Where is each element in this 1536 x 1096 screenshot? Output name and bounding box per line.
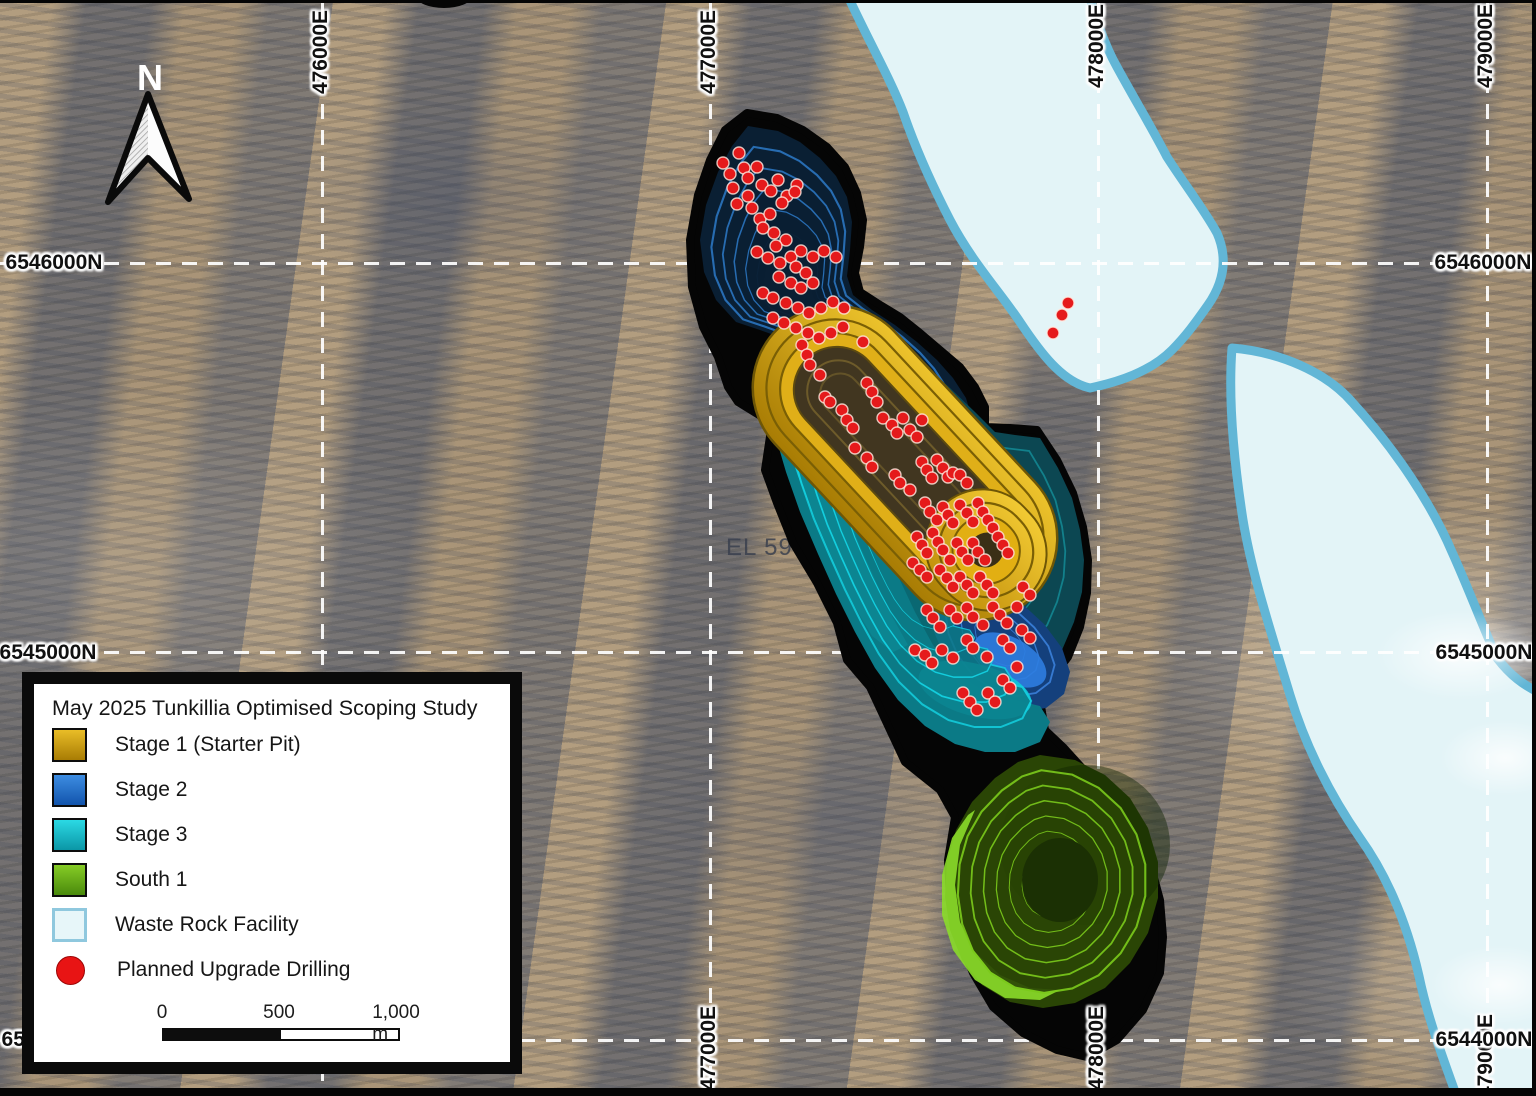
- drill-point: [1011, 601, 1023, 613]
- drill-point: [814, 369, 826, 381]
- drill-point: [762, 252, 774, 264]
- scale-bar-rule: [162, 1028, 400, 1041]
- grid-label-easting: 478000E: [1085, 1006, 1109, 1090]
- drill-point: [857, 336, 869, 348]
- drill-point: [962, 554, 974, 566]
- drill-point: [795, 245, 807, 257]
- legend-item-stage1: Stage 1 (Starter Pit): [52, 726, 301, 764]
- map-border-bottom: [0, 1088, 1536, 1096]
- drill-point: [772, 174, 784, 186]
- legend-title: May 2025 Tunkillia Optimised Scoping Stu…: [52, 696, 477, 721]
- stage3-swatch: [52, 818, 87, 852]
- drill-point: [742, 172, 754, 184]
- waste-rock-swatch: [52, 908, 87, 942]
- drill-point: [764, 208, 776, 220]
- grid-label-easting: 476000E: [309, 10, 333, 94]
- drill-point: [866, 461, 878, 473]
- grid-label-easting: 478000E: [1085, 4, 1109, 88]
- drill-point: [921, 547, 933, 559]
- drill-point: [967, 611, 979, 623]
- drill-point: [971, 704, 983, 716]
- drill-point: [981, 651, 993, 663]
- map-border-top: [0, 0, 1536, 3]
- drill-point: [827, 296, 839, 308]
- grid-label-easting: 479000E: [1474, 4, 1498, 88]
- stage1-swatch: [52, 728, 87, 762]
- grid-label-northing: 6546000N: [1435, 251, 1532, 275]
- drill-point: [770, 240, 782, 252]
- drill-point: [818, 245, 830, 257]
- drill-point: [824, 396, 836, 408]
- map-border-right: [1532, 0, 1536, 1096]
- legend-panel: May 2025 Tunkillia Optimised Scoping Stu…: [22, 672, 522, 1074]
- scale-tick-0: 0: [157, 1002, 168, 1024]
- drill-point: [871, 396, 883, 408]
- drill-point: [767, 312, 779, 324]
- drill-point: [977, 619, 989, 631]
- drill-point: [776, 197, 788, 209]
- scale-tick-500: 500: [263, 1002, 295, 1024]
- legend-item-label: Planned Upgrade Drilling: [117, 958, 350, 982]
- drill-point: [830, 251, 842, 263]
- drill-point: [1011, 661, 1023, 673]
- legend-item-label: Waste Rock Facility: [115, 913, 299, 937]
- stage2-swatch: [52, 773, 87, 807]
- legend-item-stage3: Stage 3: [52, 816, 187, 854]
- drill-point: [897, 412, 909, 424]
- drill-point: [742, 190, 754, 202]
- drill-point: [934, 621, 946, 633]
- drill-point: [1004, 642, 1016, 654]
- drill-point: [768, 227, 780, 239]
- scale-bar: 0 500 1,000 m: [140, 1002, 420, 1041]
- drill-point: [825, 327, 837, 339]
- drill-point: [813, 332, 825, 344]
- drill-point: [847, 422, 859, 434]
- drill-point: [838, 302, 850, 314]
- grid-label-easting: 477000E: [697, 1006, 721, 1090]
- drill-point: [746, 202, 758, 214]
- drill-point: [773, 271, 785, 283]
- legend-item-stage2: Stage 2: [52, 771, 187, 809]
- drill-point: [967, 587, 979, 599]
- drilling-dot-icon: [56, 956, 85, 985]
- drill-point: [790, 322, 802, 334]
- drill-point: [789, 186, 801, 198]
- grid-label-northing: 6546000N: [6, 251, 103, 275]
- drill-point: [795, 282, 807, 294]
- legend-item-drilling: Planned Upgrade Drilling: [52, 951, 350, 989]
- drill-point: [837, 321, 849, 333]
- drill-point: [792, 302, 804, 314]
- south1-swatch: [52, 863, 87, 897]
- drill-point: [849, 442, 861, 454]
- drill-point: [926, 472, 938, 484]
- drill-point: [1002, 547, 1014, 559]
- drill-point: [936, 644, 948, 656]
- drill-point: [921, 571, 933, 583]
- drill-point: [807, 277, 819, 289]
- legend-item-waste-rock: Waste Rock Facility: [52, 906, 299, 944]
- drill-point: [724, 168, 736, 180]
- drill-point: [967, 642, 979, 654]
- drill-point: [807, 251, 819, 263]
- scale-bar-ticks: 0 500 1,000 m: [140, 1002, 420, 1028]
- legend-item-label: Stage 1 (Starter Pit): [115, 733, 301, 757]
- drill-point: [931, 514, 943, 526]
- legend-item-label: Stage 2: [115, 778, 187, 802]
- drill-point: [891, 427, 903, 439]
- drill-point: [916, 414, 928, 426]
- drill-point: [803, 307, 815, 319]
- drill-point: [1001, 617, 1013, 629]
- drill-point: [727, 182, 739, 194]
- grid-label-easting: 477000E: [697, 10, 721, 94]
- drill-point: [951, 612, 963, 624]
- north-arrow: N: [95, 48, 205, 218]
- drill-point: [757, 222, 769, 234]
- drill-point: [1024, 589, 1036, 601]
- drill-point: [961, 477, 973, 489]
- drill-point: [733, 147, 745, 159]
- grid-label-easting: 479000E: [1474, 1014, 1498, 1096]
- grid-label-northing: 6544000N: [1436, 1028, 1533, 1052]
- drill-point: [1047, 327, 1059, 339]
- drill-point: [765, 185, 777, 197]
- scale-tick-1000: 1,000 m: [372, 1002, 420, 1046]
- drill-point: [904, 484, 916, 496]
- drill-point: [944, 554, 956, 566]
- drill-point: [731, 198, 743, 210]
- drill-point: [802, 327, 814, 339]
- drill-point: [911, 431, 923, 443]
- drill-point: [751, 246, 763, 258]
- drill-point: [780, 297, 792, 309]
- map-canvas: EL 5901: [0, 0, 1536, 1096]
- drill-point: [1024, 632, 1036, 644]
- drill-point: [1004, 682, 1016, 694]
- drill-point: [815, 302, 827, 314]
- drill-point: [967, 516, 979, 528]
- drill-point: [717, 157, 729, 169]
- legend-item-label: South 1: [115, 868, 187, 892]
- drill-point: [989, 696, 1001, 708]
- drill-point: [947, 652, 959, 664]
- drill-point: [987, 587, 999, 599]
- drill-point: [947, 517, 959, 529]
- drill-point: [1056, 309, 1068, 321]
- drill-point: [751, 161, 763, 173]
- drill-point: [767, 292, 779, 304]
- grid-label-northing: 6545000N: [0, 641, 96, 665]
- grid-label-northing: 6545000N: [1436, 641, 1533, 665]
- legend-item-south1: South 1: [52, 861, 187, 899]
- drill-point: [778, 317, 790, 329]
- legend-item-label: Stage 3: [115, 823, 187, 847]
- drill-point: [926, 657, 938, 669]
- drill-point: [979, 554, 991, 566]
- drill-point: [804, 359, 816, 371]
- drill-point: [774, 257, 786, 269]
- drill-point: [1062, 297, 1074, 309]
